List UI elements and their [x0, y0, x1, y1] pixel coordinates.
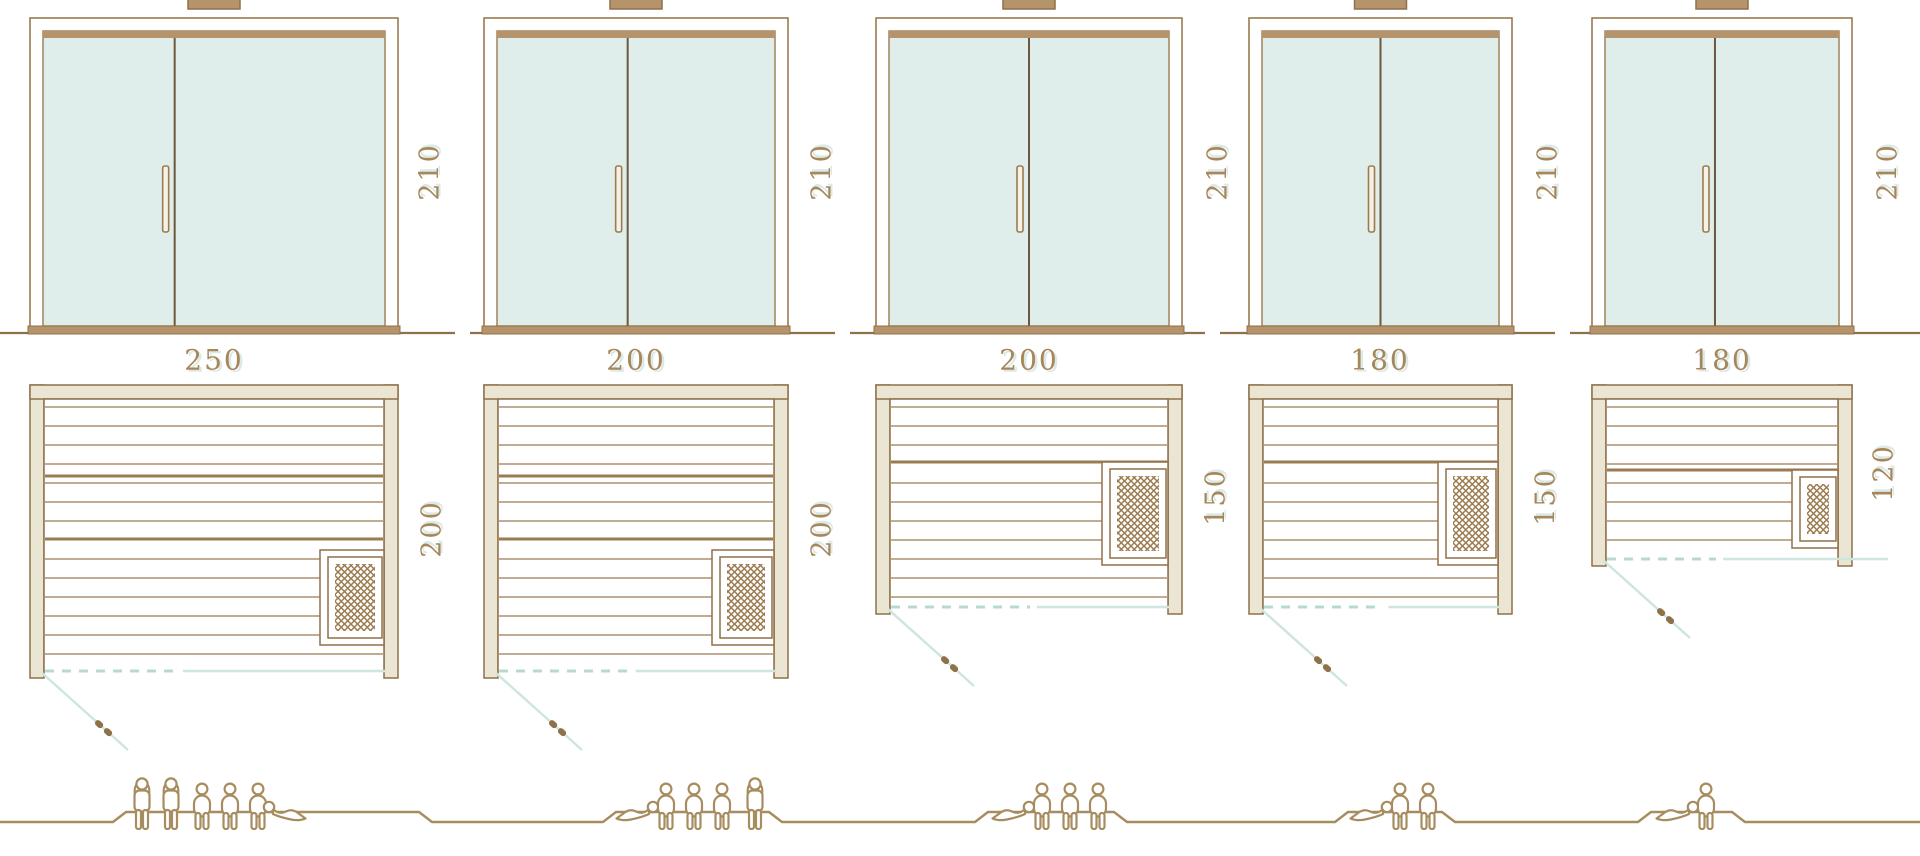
plan-depth-label: 200: [807, 500, 838, 558]
plan-wall-left: [484, 385, 498, 678]
capacity-group-sauna-5: [1657, 784, 1715, 829]
plan-wall-top: [1249, 385, 1512, 399]
door-height-label: 210: [1533, 143, 1564, 201]
plan-wall-right: [1168, 385, 1182, 614]
glass-panel: [497, 31, 775, 326]
plan-width-label: 200: [606, 344, 665, 377]
heater-icon: [335, 564, 375, 631]
door-top-rail: [43, 31, 385, 38]
door-top-rail: [497, 31, 775, 38]
door-top-rail: [1605, 31, 1839, 38]
plan-wall-top: [484, 385, 788, 399]
person-sitting-icon: [1062, 784, 1078, 829]
person-sitting-icon: [222, 784, 238, 829]
person-standing-icon: [135, 778, 150, 829]
door-height-label: 210: [415, 143, 446, 201]
floor-plan-sauna-3: [876, 385, 1182, 686]
door-swing-line: [1604, 561, 1690, 638]
floor-plan-sauna-1: [30, 385, 398, 750]
door-swing-line: [888, 609, 974, 686]
heater-icon: [1117, 476, 1159, 551]
capacity-group-sauna-4: [1351, 784, 1437, 829]
person-sitting-icon: [1090, 784, 1106, 829]
capacity-group-sauna-2: [617, 778, 763, 829]
door-handle: [1703, 166, 1709, 232]
door-top-rail: [1262, 31, 1499, 38]
door-height-label: 210: [807, 143, 838, 201]
floor-plan-sauna-5: [1592, 385, 1888, 638]
plan-depth-label: 120: [1869, 444, 1900, 502]
heater-icon: [1807, 484, 1829, 534]
plan-width-label: 180: [1692, 344, 1751, 377]
person-standing-icon: [164, 778, 179, 829]
plan-depth-label: 150: [1201, 468, 1232, 526]
door-elevation-sauna-2: [482, 0, 790, 334]
floor-plan-sauna-4: [1249, 385, 1512, 686]
plan-width-label: 200: [999, 344, 1058, 377]
person-sitting-icon: [1392, 784, 1408, 829]
plan-wall-top: [30, 385, 398, 399]
door-elevation-sauna-3: [874, 0, 1184, 334]
door-threshold: [1590, 326, 1854, 334]
roof-cap: [610, 0, 662, 9]
door-handle: [616, 166, 622, 232]
plan-width-label: 250: [184, 344, 243, 377]
diagram-canvas: [0, 0, 1920, 856]
plan-wall-left: [876, 385, 890, 614]
roof-cap: [1355, 0, 1407, 9]
floor-plan-sauna-2: [484, 385, 788, 750]
person-sitting-icon: [1420, 784, 1436, 829]
heater-icon: [727, 564, 765, 631]
door-elevation-sauna-5: [1590, 0, 1854, 334]
capacity-group-sauna-1: [135, 778, 306, 829]
person-sitting-icon: [714, 784, 730, 829]
door-swing-line: [42, 673, 128, 750]
door-threshold: [28, 326, 400, 334]
plan-wall-right: [774, 385, 788, 678]
door-elevation-sauna-4: [1247, 0, 1514, 334]
roof-cap: [1696, 0, 1748, 9]
heater-icon: [1453, 476, 1489, 551]
door-elevation-sauna-1: [28, 0, 400, 334]
roof-cap: [1003, 0, 1055, 9]
sauna-size-diagram: 210 210 210 210 210 250 200 200 180 180 …: [0, 0, 1920, 856]
plan-depth-label: 150: [1531, 468, 1562, 526]
door-top-rail: [889, 31, 1169, 38]
person-sitting-icon: [194, 784, 210, 829]
person-sitting-icon: [1034, 784, 1050, 829]
door-swing-line: [496, 673, 582, 750]
person-standing-icon: [748, 778, 763, 829]
plan-wall-right: [1498, 385, 1512, 614]
plan-wall-top: [1592, 385, 1852, 399]
door-threshold: [1247, 326, 1514, 334]
roof-cap: [188, 0, 240, 9]
door-handle: [1017, 166, 1023, 232]
door-swing-line: [1261, 609, 1347, 686]
glass-panel: [1605, 31, 1839, 326]
person-sitting-icon: [1698, 784, 1714, 829]
person-sitting-icon: [686, 784, 702, 829]
door-height-label: 210: [1873, 143, 1904, 201]
door-threshold: [482, 326, 790, 334]
plan-wall-left: [30, 385, 44, 678]
plan-wall-left: [1249, 385, 1263, 614]
plan-wall-left: [1592, 385, 1606, 566]
capacity-group-sauna-3: [993, 784, 1107, 829]
plan-wall-top: [876, 385, 1182, 399]
glass-panel: [43, 31, 385, 326]
person-sitting-icon: [658, 784, 674, 829]
door-height-label: 210: [1203, 143, 1234, 201]
plan-width-label: 180: [1350, 344, 1409, 377]
plan-wall-right: [384, 385, 398, 678]
door-handle: [1369, 166, 1375, 232]
plan-depth-label: 200: [417, 500, 448, 558]
plan-wall-right: [1838, 385, 1852, 566]
door-threshold: [874, 326, 1184, 334]
door-handle: [163, 166, 169, 232]
